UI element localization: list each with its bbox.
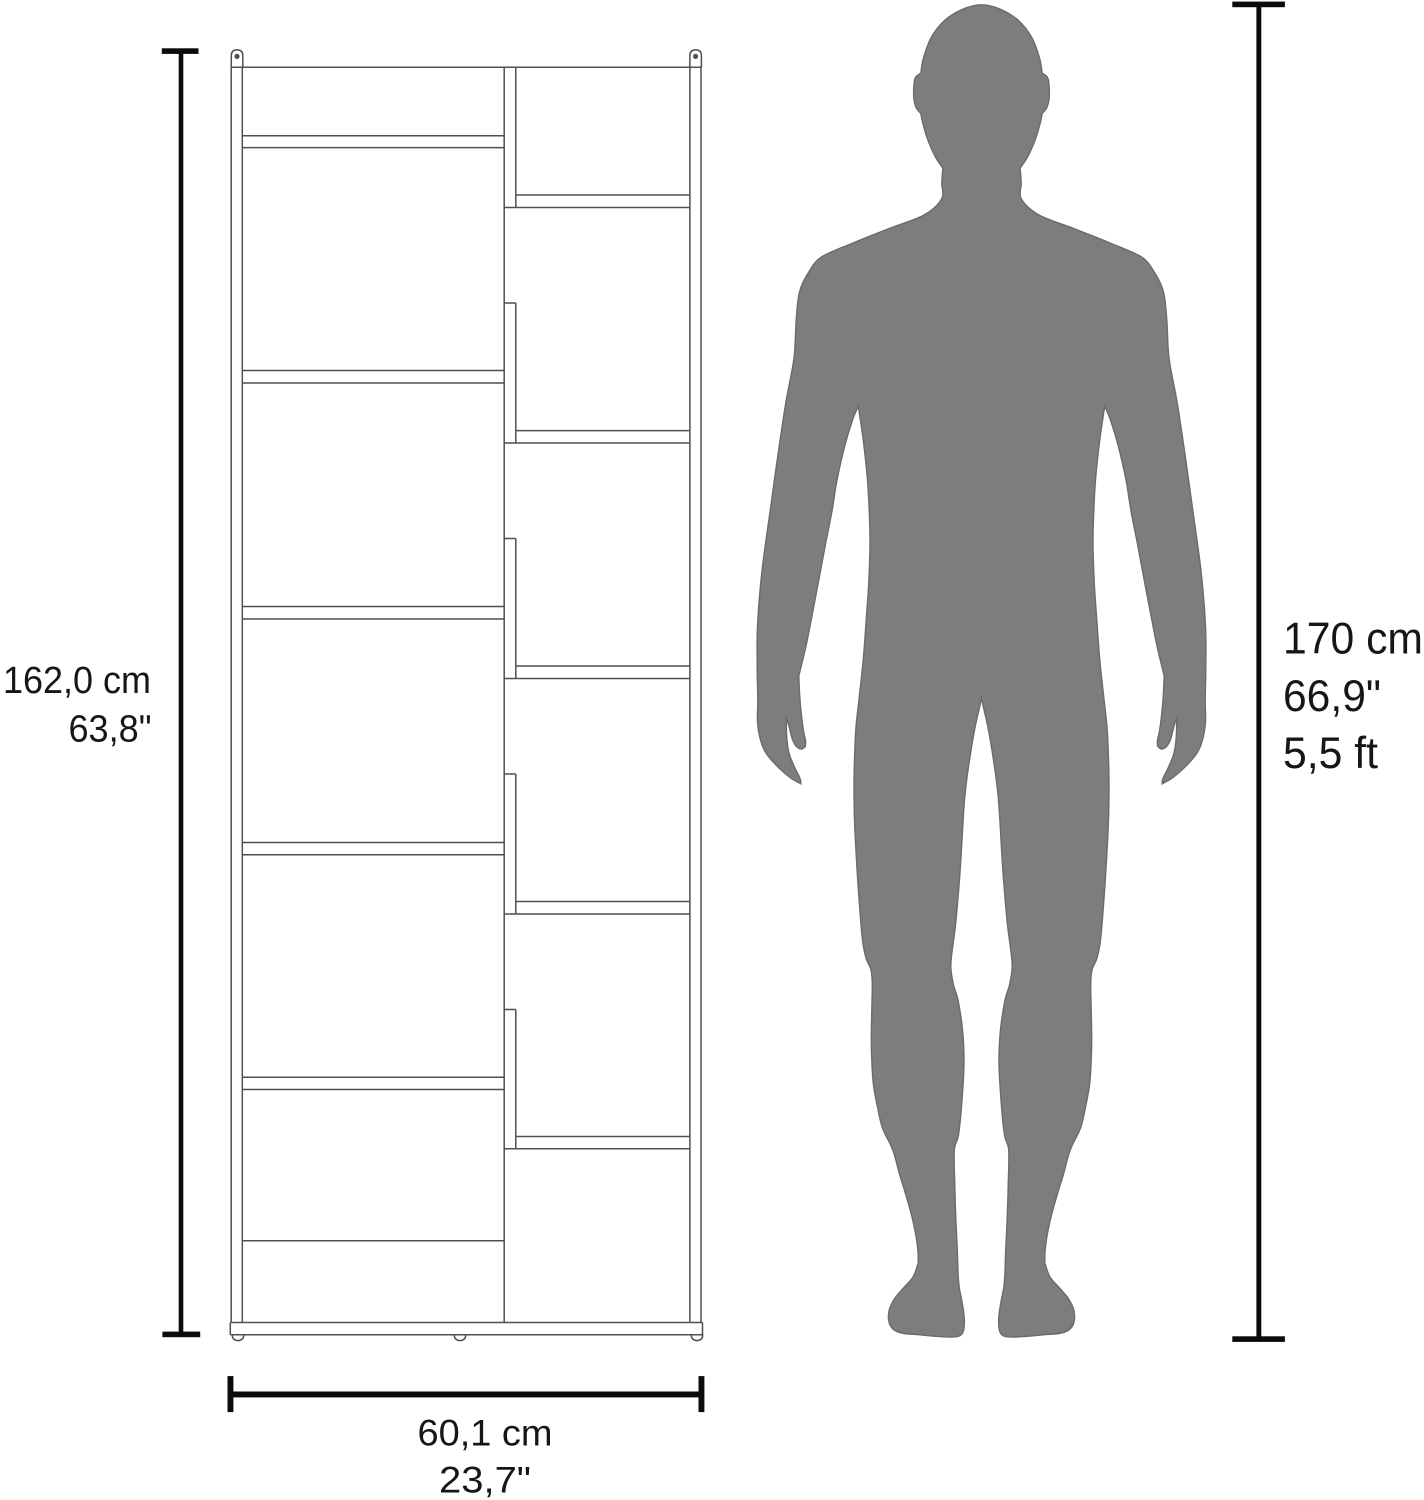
svg-text:170 cm: 170 cm xyxy=(1283,615,1423,664)
svg-text:23,7": 23,7" xyxy=(439,1459,531,1500)
svg-text:63,8": 63,8" xyxy=(69,709,152,751)
svg-text:162,0 cm: 162,0 cm xyxy=(3,660,151,702)
svg-text:5,5 ft: 5,5 ft xyxy=(1283,729,1379,778)
svg-text:60,1 cm: 60,1 cm xyxy=(418,1413,553,1454)
svg-text:66,9": 66,9" xyxy=(1283,672,1381,721)
